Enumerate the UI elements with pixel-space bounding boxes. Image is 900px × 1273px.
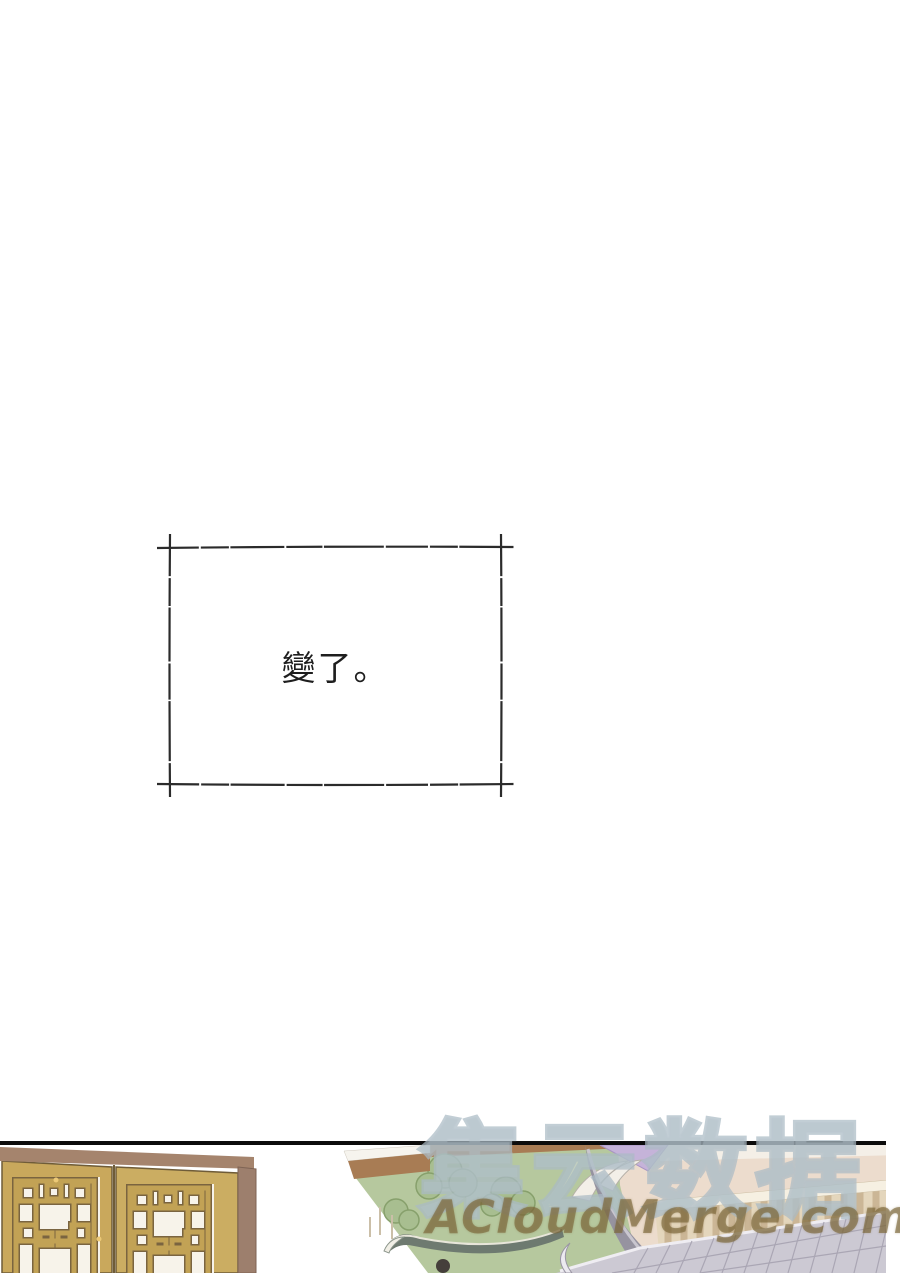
caption-text: 變了。	[170, 547, 501, 784]
comic-page: 變了。	[0, 0, 900, 1273]
door-stud-1	[54, 1178, 59, 1183]
door-right-jamb	[238, 1167, 256, 1273]
bottom-panel	[0, 1141, 886, 1273]
figure-head	[436, 1259, 450, 1273]
courtyard-illustration	[0, 1145, 886, 1273]
caption-frame-bottom	[157, 784, 514, 785]
caption-frame-right	[501, 534, 502, 797]
door-stud-2	[97, 1237, 102, 1242]
